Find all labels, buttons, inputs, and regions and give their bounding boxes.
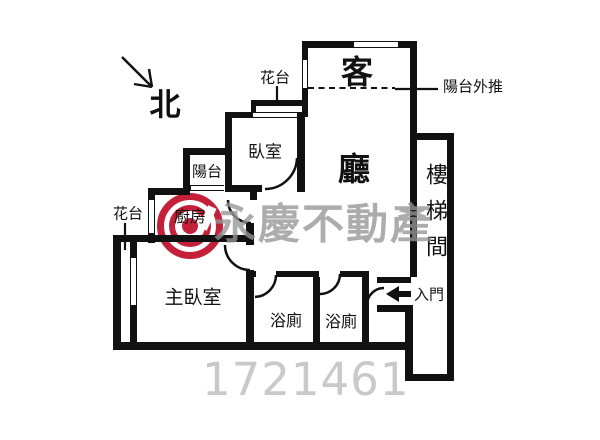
floorplan-canvas: 北 花台 客 廳 陽台外推 臥室 陽台 花台 廚房 主臥室 浴廁 浴廁 樓梯間 … [0,0,600,440]
balcony-label: 陽台 [192,161,222,182]
door-arc-bath1 [255,275,276,297]
entry-arrow [386,286,411,302]
living-room-label-char2: 廳 [338,144,370,190]
kitchen-label: 廚房 [174,203,206,227]
door-arc-bedroom [265,158,297,189]
master-bedroom-label: 主臥室 [164,283,221,310]
north-label: 北 [150,80,181,125]
watermark-listing-id: 1721461 [202,357,409,402]
entrance-label: 入門 [414,284,444,305]
watermark-brand-text: 永慶不動產 [214,191,434,252]
door-arc-entry [367,288,384,305]
bath1-label: 浴廁 [270,307,302,331]
bath2-label: 浴廁 [325,308,357,332]
north-arrow-shaft [122,57,151,86]
bedroom-label: 臥室 [248,138,282,163]
door-arc-bath2 [320,274,340,294]
living-room-label-char1: 客 [341,47,373,93]
flower-ledge-top-label: 花台 [260,67,290,88]
flower-ledge-left-label: 花台 [113,203,143,224]
balcony-pushout-label: 陽台外推 [443,76,503,97]
